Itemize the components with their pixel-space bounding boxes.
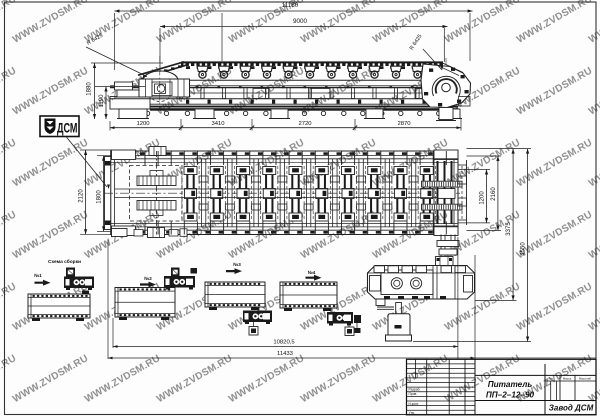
svg-text:2870: 2870 [397, 121, 411, 127]
svg-text:Масса: Масса [563, 377, 572, 381]
svg-text:4550: 4550 [520, 242, 526, 256]
svg-text:Завод ДСМ: Завод ДСМ [549, 404, 594, 413]
svg-text:1800: 1800 [96, 190, 102, 204]
svg-text:Питатель: Питатель [488, 380, 533, 389]
svg-text:ДСМ: ДСМ [57, 121, 78, 136]
svg-text:№2: №2 [144, 276, 152, 281]
svg-text:1190: 1190 [99, 94, 105, 108]
svg-text:Масштаб: Масштаб [579, 377, 591, 381]
svg-text:Схема сборки: Схема сборки [48, 258, 81, 265]
svg-text:2120: 2120 [78, 189, 84, 203]
svg-text:1880: 1880 [87, 82, 93, 96]
svg-text:9000: 9000 [293, 18, 308, 25]
svg-text:Н.конт.: Н.конт. [409, 402, 420, 406]
svg-text:Утв.: Утв. [409, 411, 415, 415]
svg-text:11180: 11180 [282, 2, 299, 9]
svg-text:2720: 2720 [298, 121, 312, 127]
svg-text:3375: 3375 [506, 222, 512, 236]
svg-text:Пров.: Пров. [409, 392, 418, 396]
svg-text:Лит.: Лит. [548, 377, 553, 381]
svg-text:№4: №4 [308, 270, 316, 275]
svg-text:11433: 11433 [277, 351, 294, 357]
svg-text:№3: №3 [233, 262, 241, 267]
svg-text:№1: №1 [34, 273, 42, 278]
svg-text:10820,5: 10820,5 [273, 340, 295, 346]
svg-text:3410: 3410 [211, 121, 225, 127]
svg-text:ПП–2–12–90: ПП–2–12–90 [486, 391, 535, 400]
svg-text:1200: 1200 [479, 191, 485, 205]
svg-text:2160: 2160 [491, 187, 497, 201]
svg-text:1200: 1200 [136, 121, 150, 127]
svg-text:Разраб.: Разраб. [409, 387, 421, 391]
